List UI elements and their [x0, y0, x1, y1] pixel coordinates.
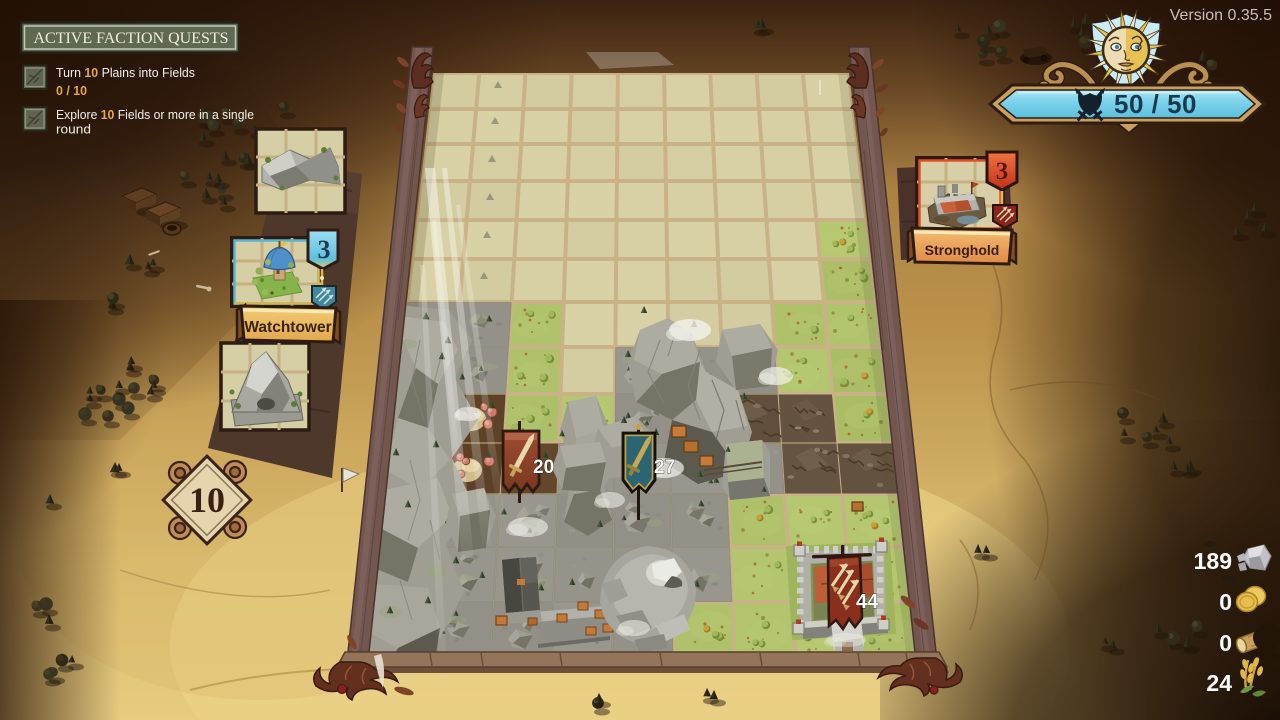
svg-text:Version 0.35.5: Version 0.35.5 [1170, 7, 1272, 24]
svg-text:3: 3 [318, 235, 331, 264]
svg-text:10: 10 [189, 480, 225, 520]
svg-text:3: 3 [996, 158, 1009, 185]
svg-text:189: 189 [1194, 548, 1232, 574]
svg-text:Stronghold: Stronghold [925, 242, 1000, 258]
svg-text:50 / 50: 50 / 50 [1114, 89, 1197, 119]
svg-text:0: 0 [1219, 630, 1232, 656]
svg-text:Watchtower: Watchtower [244, 319, 331, 336]
svg-text:round: round [56, 122, 91, 137]
svg-text:0 / 10: 0 / 10 [56, 83, 87, 98]
svg-text:27: 27 [654, 457, 675, 478]
svg-text:20: 20 [533, 457, 554, 478]
svg-text:ACTIVE FACTION QUESTS: ACTIVE FACTION QUESTS [34, 30, 229, 47]
svg-text:0: 0 [1219, 589, 1232, 615]
svg-text:Explore 10 Fields or more in a: Explore 10 Fields or more in a single [56, 107, 254, 122]
svg-text:Turn 10 Plains into Fields: Turn 10 Plains into Fields [56, 65, 195, 80]
svg-text:24: 24 [1206, 670, 1232, 696]
svg-text:44: 44 [856, 591, 879, 613]
